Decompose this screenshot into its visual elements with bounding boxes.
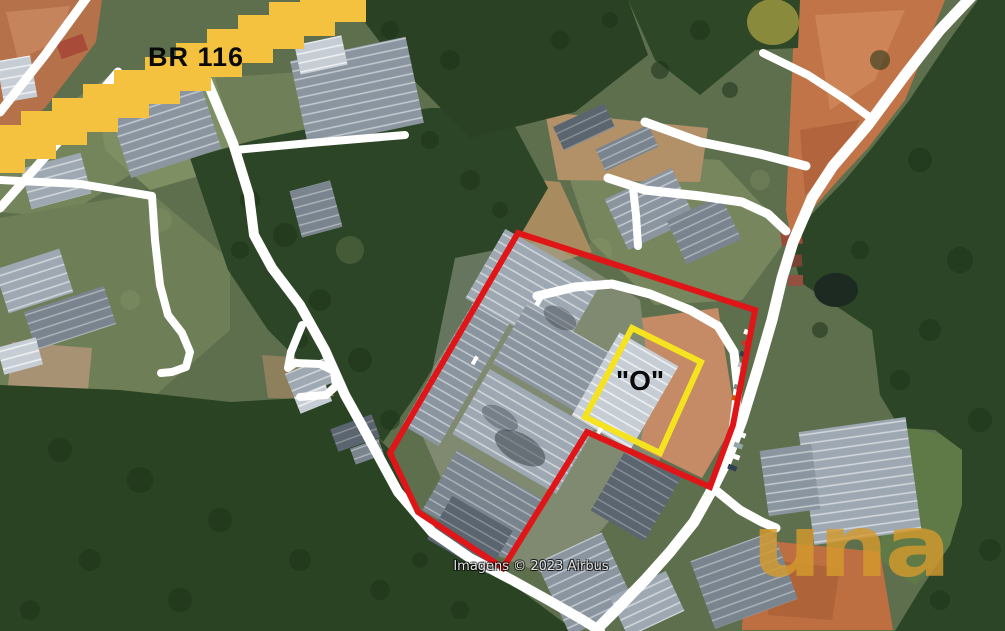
brand-watermark: una [752, 504, 947, 590]
satellite-map: BR 116 "O" Imagens © 2023 Airbus una [0, 0, 1005, 631]
parcel-label: "O" [601, 365, 679, 397]
imagery-attribution: Imagens © 2023 Airbus [436, 559, 626, 574]
highway-label: BR 116 [148, 42, 244, 73]
